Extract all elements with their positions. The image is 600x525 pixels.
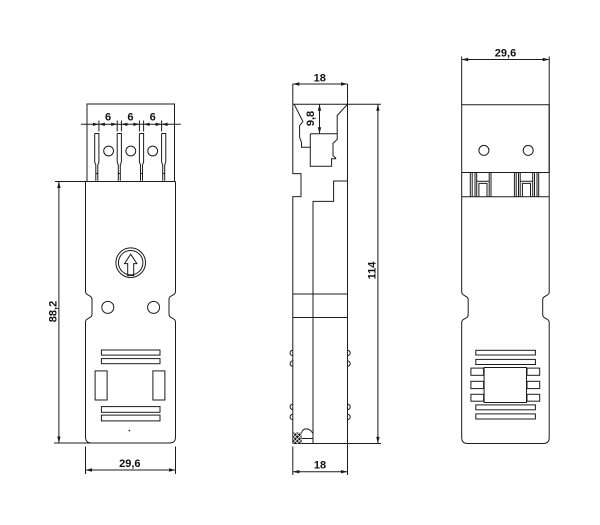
svg-text:6: 6: [150, 112, 156, 124]
svg-text:29,6: 29,6: [495, 48, 516, 60]
svg-text:114: 114: [367, 261, 379, 280]
svg-text:9,8: 9,8: [305, 111, 317, 126]
svg-text:6: 6: [127, 112, 133, 124]
svg-text:18: 18: [314, 73, 326, 85]
svg-text:6: 6: [105, 112, 111, 124]
svg-text:88,2: 88,2: [48, 301, 60, 322]
svg-text:18: 18: [314, 460, 326, 472]
svg-text:29,6: 29,6: [119, 458, 140, 470]
